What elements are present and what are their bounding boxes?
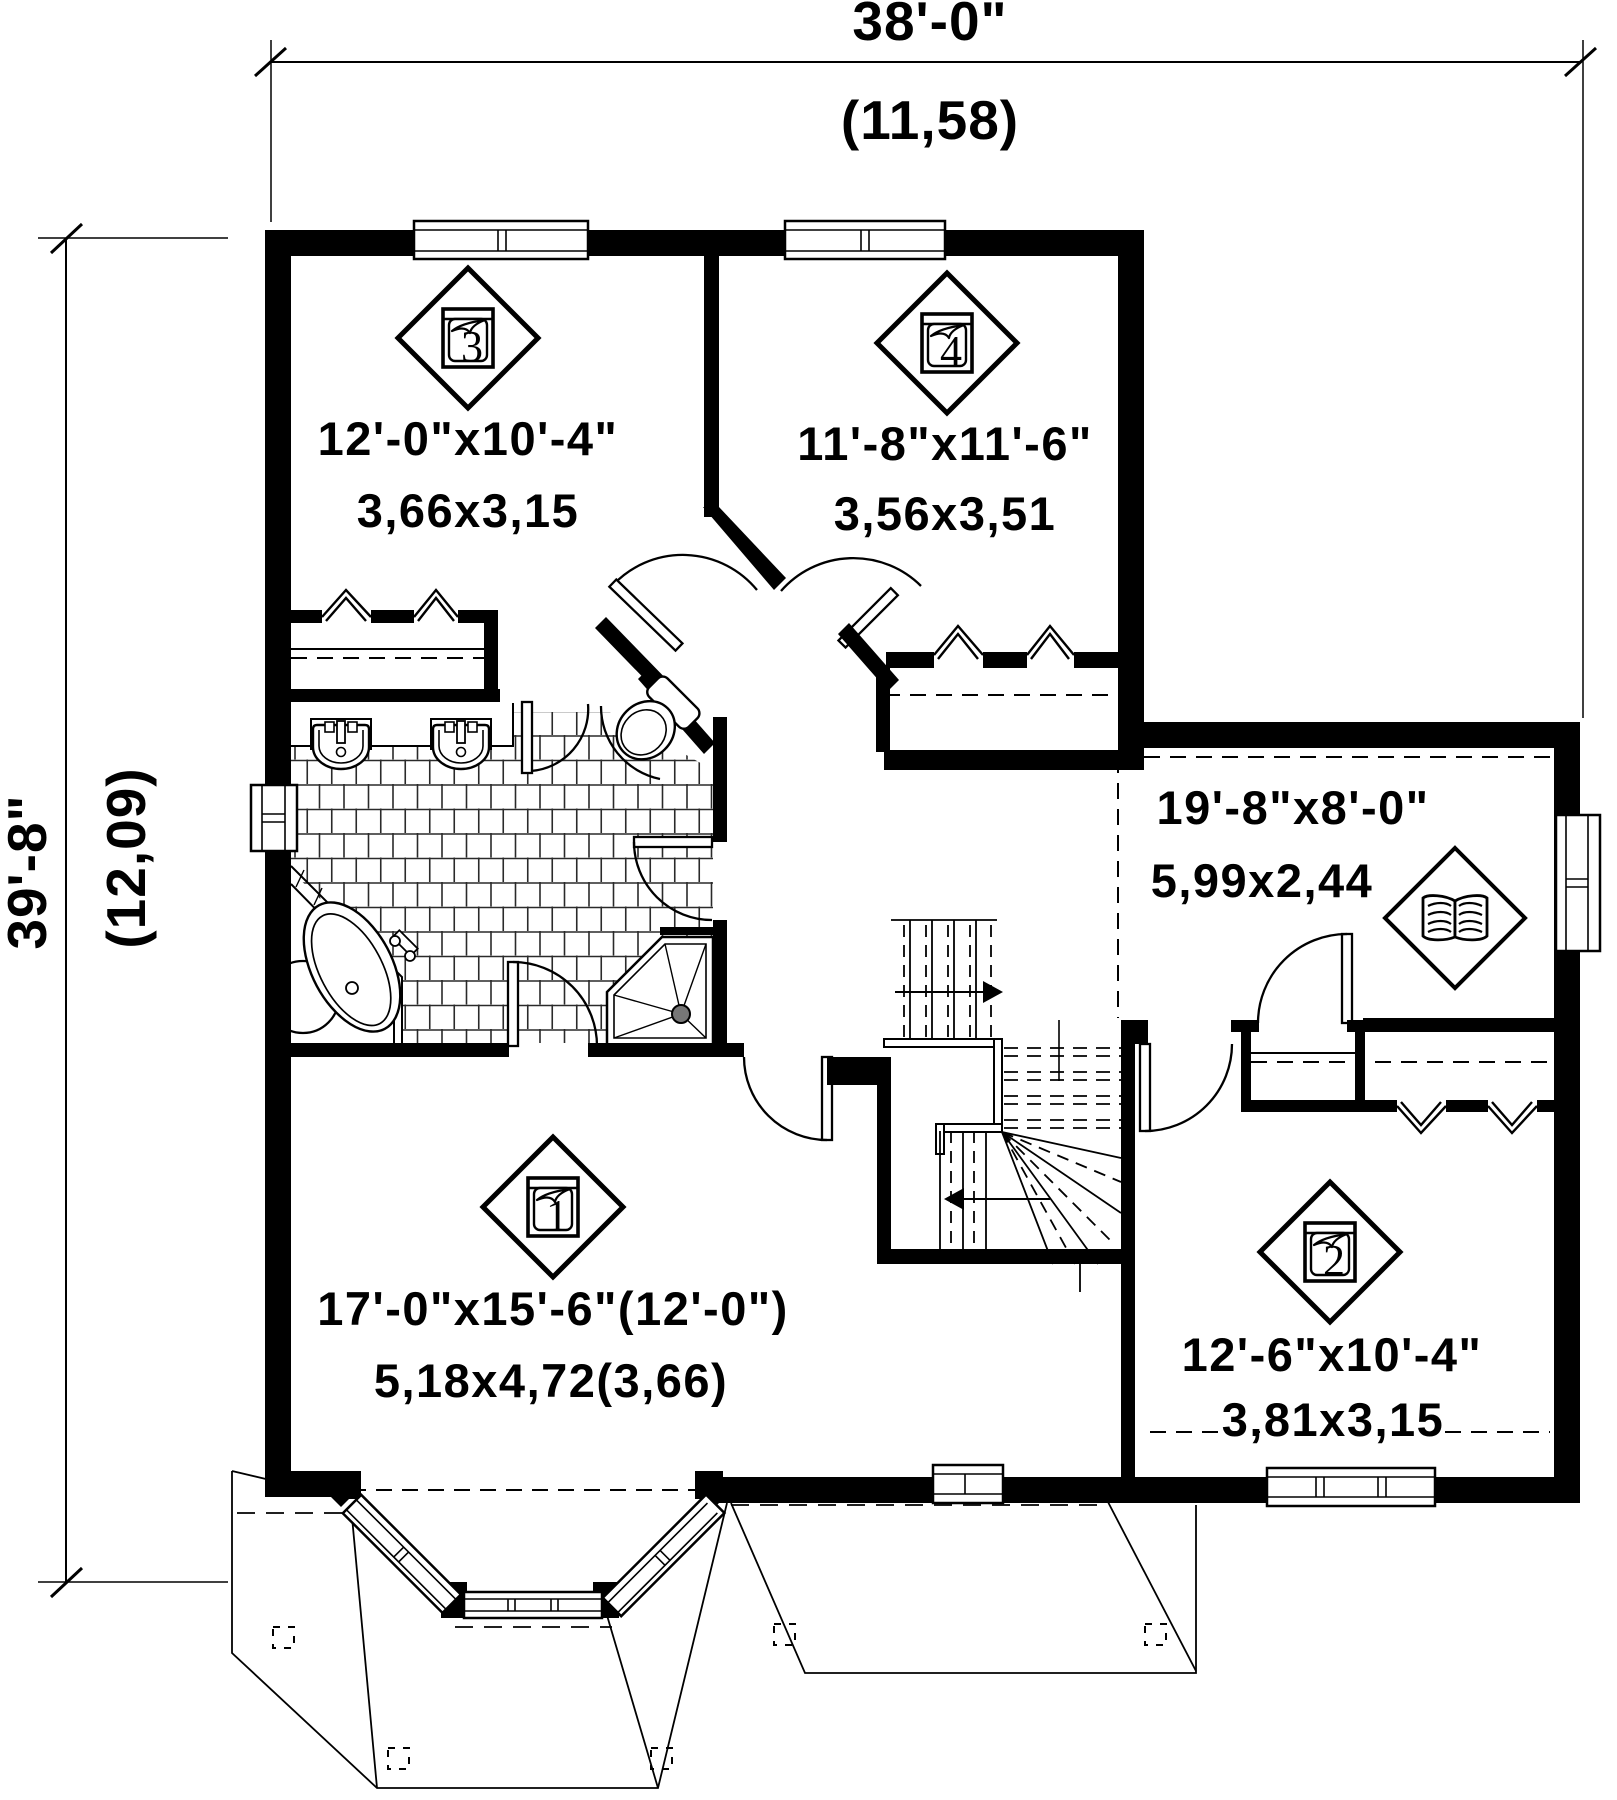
svg-text:17'-0"x15'-6"(12'-0"): 17'-0"x15'-6"(12'-0") [317,1282,789,1335]
svg-text:2: 2 [1323,1236,1345,1285]
svg-text:3,56x3,51: 3,56x3,51 [834,487,1057,540]
svg-text:11'-8"x11'-6": 11'-8"x11'-6" [797,417,1093,470]
svg-text:1: 1 [546,1191,568,1240]
svg-text:(11,58): (11,58) [841,89,1019,151]
svg-text:38'-0": 38'-0" [852,0,1007,52]
svg-text:12'-6"x10'-4": 12'-6"x10'-4" [1182,1328,1483,1381]
svg-text:4: 4 [940,327,962,376]
svg-text:5,99x2,44: 5,99x2,44 [1151,854,1374,907]
svg-text:3: 3 [461,322,483,371]
svg-text:19'-8"x8'-0": 19'-8"x8'-0" [1156,781,1429,834]
svg-text:(12,09): (12,09) [95,767,157,948]
svg-text:39'-8": 39'-8" [0,794,58,949]
svg-text:12'-0"x10'-4": 12'-0"x10'-4" [318,412,619,465]
svg-text:5,18x4,72(3,66): 5,18x4,72(3,66) [374,1354,728,1407]
svg-text:3,81x3,15: 3,81x3,15 [1222,1393,1445,1446]
svg-text:3,66x3,15: 3,66x3,15 [357,484,580,537]
